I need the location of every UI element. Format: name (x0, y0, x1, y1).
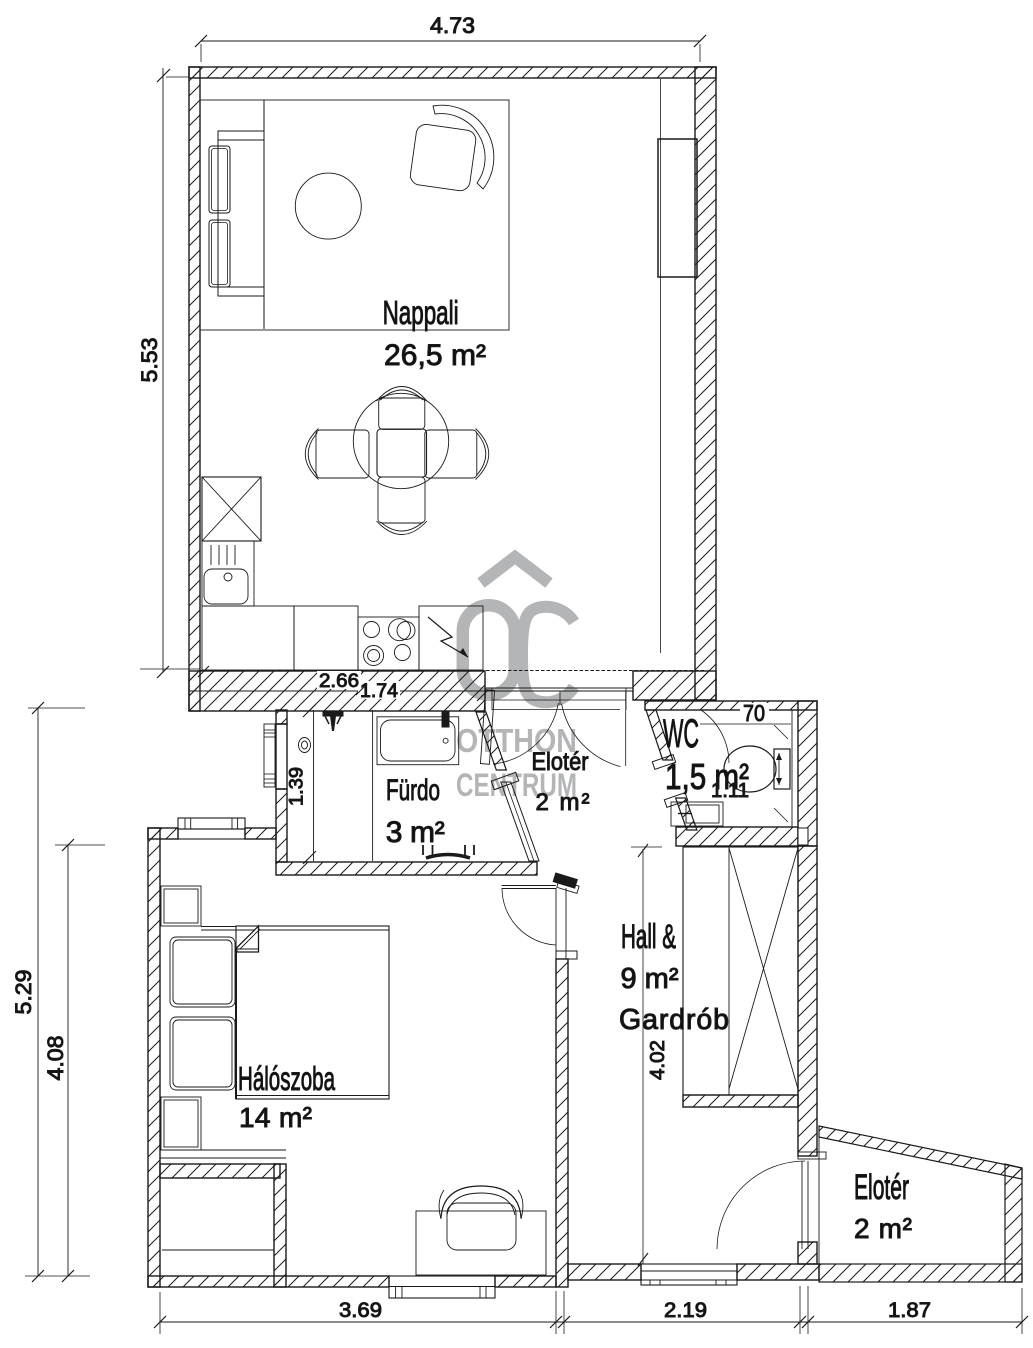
svg-text:5.53: 5.53 (137, 338, 162, 383)
svg-text:1.87: 1.87 (888, 1299, 931, 1322)
svg-text:2 m²: 2 m² (536, 789, 590, 816)
svg-text:26,5 m²: 26,5 m² (384, 339, 486, 372)
svg-text:WC: WC (663, 712, 699, 756)
svg-text:2.19: 2.19 (664, 1299, 707, 1322)
svg-text:2 m²: 2 m² (854, 1213, 912, 1244)
svg-text:5.29: 5.29 (11, 970, 36, 1015)
svg-text:3 m²: 3 m² (386, 816, 445, 849)
svg-text:Nappali: Nappali (383, 294, 459, 331)
svg-text:14 m²: 14 m² (239, 1102, 312, 1133)
svg-text:2.66: 2.66 (319, 671, 359, 692)
svg-text:Gardrób: Gardrób (619, 1004, 729, 1036)
svg-text:Elotér: Elotér (854, 1168, 909, 1207)
svg-text:Hall &: Hall & (621, 918, 676, 956)
svg-text:Fürdo: Fürdo (386, 774, 440, 807)
svg-text:3.69: 3.69 (339, 1299, 382, 1322)
svg-text:1.11: 1.11 (711, 780, 749, 802)
svg-text:70: 70 (743, 700, 765, 726)
svg-text:9 m²: 9 m² (621, 963, 679, 995)
svg-text:4.08: 4.08 (43, 1036, 68, 1081)
svg-text:1.39: 1.39 (287, 767, 308, 806)
svg-text:4.73: 4.73 (430, 13, 475, 38)
svg-text:Hálószoba: Hálószoba (238, 1060, 335, 1097)
svg-text:4.02: 4.02 (647, 1040, 669, 1080)
svg-text:Elotér: Elotér (532, 748, 589, 776)
svg-text:1.74: 1.74 (360, 681, 398, 702)
